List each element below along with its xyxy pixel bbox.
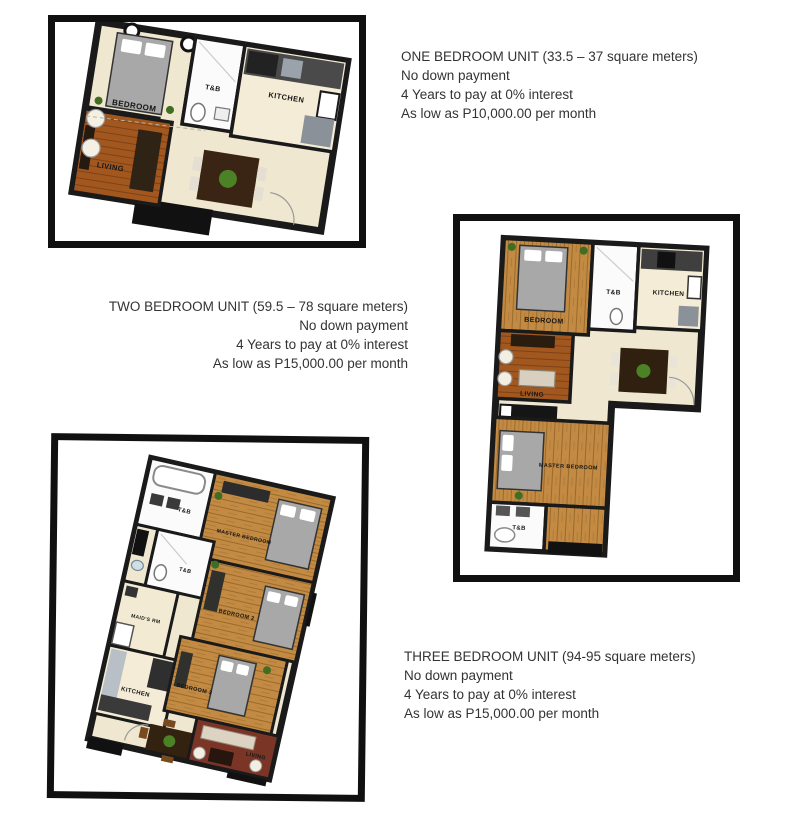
kitchen-sink-icon [281, 58, 304, 79]
sofa-icon [519, 369, 556, 387]
two-bedroom-title: TWO BEDROOM UNIT (59.5 – 78 square meter… [30, 297, 408, 316]
one-bedroom-floorplan-frame: BEDROOM T&B KITCHEN [48, 15, 366, 248]
toilet-icon [610, 308, 623, 325]
three-bedroom-line-1: No down payment [404, 666, 796, 685]
three-bedroom-description: THREE BEDROOM UNIT (94-95 square meters)… [404, 647, 796, 723]
three-bedroom-line-2: 4 Years to pay at 0% interest [404, 685, 796, 704]
two-bedroom-line-2: 4 Years to pay at 0% interest [30, 335, 408, 354]
two-bedroom-floorplan: BEDROOM T&B KITCHEN LIVING [460, 221, 733, 575]
three-bedroom-line-3: As low as P15,000.00 per month [404, 704, 796, 723]
living-label: LIVING [520, 391, 544, 399]
stove-icon [246, 51, 279, 77]
two-bedroom-floorplan-frame: BEDROOM T&B KITCHEN LIVING [453, 214, 740, 582]
pantry-cabinet [317, 91, 340, 120]
pantry-cabinet [687, 276, 701, 299]
chair-icon [610, 372, 619, 385]
one-bedroom-line-2: 4 Years to pay at 0% interest [401, 85, 796, 104]
pillow-icon [545, 251, 563, 263]
sink-icon [516, 506, 531, 517]
three-bedroom-title: THREE BEDROOM UNIT (94-95 square meters) [404, 647, 796, 666]
sink-icon [496, 505, 511, 516]
two-bedroom-line-3: As low as P15,000.00 per month [30, 354, 408, 373]
refrigerator-icon [678, 306, 699, 327]
stove-icon [657, 252, 676, 269]
round-chair-icon [498, 371, 513, 386]
chair-icon [611, 352, 620, 365]
three-bedroom-floorplan: T&B MASTER BEDROOM T&B [54, 440, 362, 795]
three-bedroom-floorplan-frame: T&B MASTER BEDROOM T&B [47, 433, 369, 802]
one-bedroom-line-3: As low as P10,000.00 per month [401, 104, 796, 123]
pillow-icon [502, 435, 514, 452]
round-chair-icon [499, 349, 514, 364]
sink-icon [214, 107, 230, 121]
pillow-icon [524, 250, 542, 262]
one-bedroom-floorplan: BEDROOM T&B KITCHEN [55, 22, 359, 241]
wardrobe [112, 622, 134, 647]
one-bedroom-line-1: No down payment [401, 66, 796, 85]
flyer-page: BEDROOM T&B KITCHEN [0, 0, 800, 820]
tb2-label: T&B [512, 525, 526, 532]
pillow-icon [501, 455, 513, 472]
tv-console-icon [511, 334, 556, 348]
console-detail [501, 406, 512, 417]
one-bedroom-title: ONE BEDROOM UNIT (33.5 – 37 square meter… [401, 47, 796, 66]
two-bedroom-description: TWO BEDROOM UNIT (59.5 – 78 square meter… [30, 297, 408, 373]
two-bedroom-line-1: No down payment [30, 316, 408, 335]
refrigerator-icon [300, 115, 334, 147]
chair-icon [669, 355, 678, 368]
one-bedroom-description: ONE BEDROOM UNIT (33.5 – 37 square meter… [401, 47, 796, 123]
tb-label: T&B [606, 289, 621, 297]
